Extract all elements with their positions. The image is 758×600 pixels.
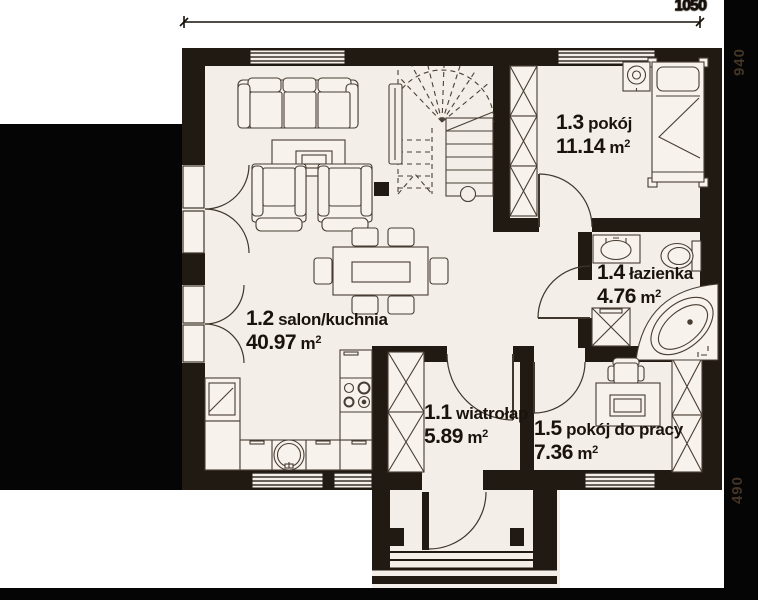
wall-bathroom-left-lower [578,318,592,348]
room-label-lazienka: 1.4 łazienka 4.76 m2 [597,262,693,308]
room-label-wiatrolap: 1.1 wiatrołap 5.89 m2 [424,402,528,448]
washbasin-icon [593,235,640,263]
porch-wall-left [372,490,390,570]
wall-stairs-bedroom [493,66,510,232]
wall-left-pier [182,253,205,285]
room-label-pokoj-do-pracy: 1.5 pokój do pracy 7.36 m2 [534,418,683,464]
stairs-handrail [389,84,402,164]
bed-icon [648,58,708,187]
nightstand-lamp-icon [623,62,650,91]
kitchen-sink-icon [274,440,304,470]
armchair-icon [318,164,372,231]
wall-left-lower [182,363,205,470]
stove-icon [340,350,372,440]
porch-wall-right [533,490,557,570]
kitchen-counter-left [205,421,240,470]
porch-post-right [510,528,524,546]
armchair-icon [252,164,306,231]
dimension-line-top [180,16,704,28]
window-kitchen-2 [334,472,372,488]
wall-hall-stub [513,346,534,362]
porch-post-left [390,528,404,546]
left-mask-block [0,124,182,490]
room-label-pokoj: 1.3 pokój 11.14 m2 [556,112,632,158]
wall-bedroom-bottom-left [510,218,539,232]
wall-vestibule-left [372,346,388,470]
floor-plan: 1050 940 490 1.1 wiatrołap 5.89 m2 1.2 s… [0,0,758,600]
fridge-icon [205,378,240,421]
kitchen-counter-bottom [240,440,372,470]
wardrobe-icon-vestibule [388,352,424,472]
wall-bathroom-left-upper [578,232,592,280]
wardrobe-icon-bedroom [510,66,537,216]
dimension-top-value: 1050 [674,0,706,15]
window-kitchen [252,472,323,488]
dimension-right-lower-value: 490 [729,476,746,504]
stair-post [374,182,389,196]
bottom-mask-band [0,588,758,600]
office-chair-icon [608,358,644,384]
wall-bedroom-bottom-right [592,218,722,232]
window-living [250,50,345,64]
washing-machine-icon [592,308,630,346]
dimension-right-upper-value: 940 [731,48,748,76]
wall-left-upper [182,66,205,165]
window-office [585,472,655,488]
right-mask-band [724,0,758,600]
sofa-icon [238,78,358,128]
room-label-salon-kuchnia: 1.2 salon/kuchnia 40.97 m2 [246,308,388,354]
